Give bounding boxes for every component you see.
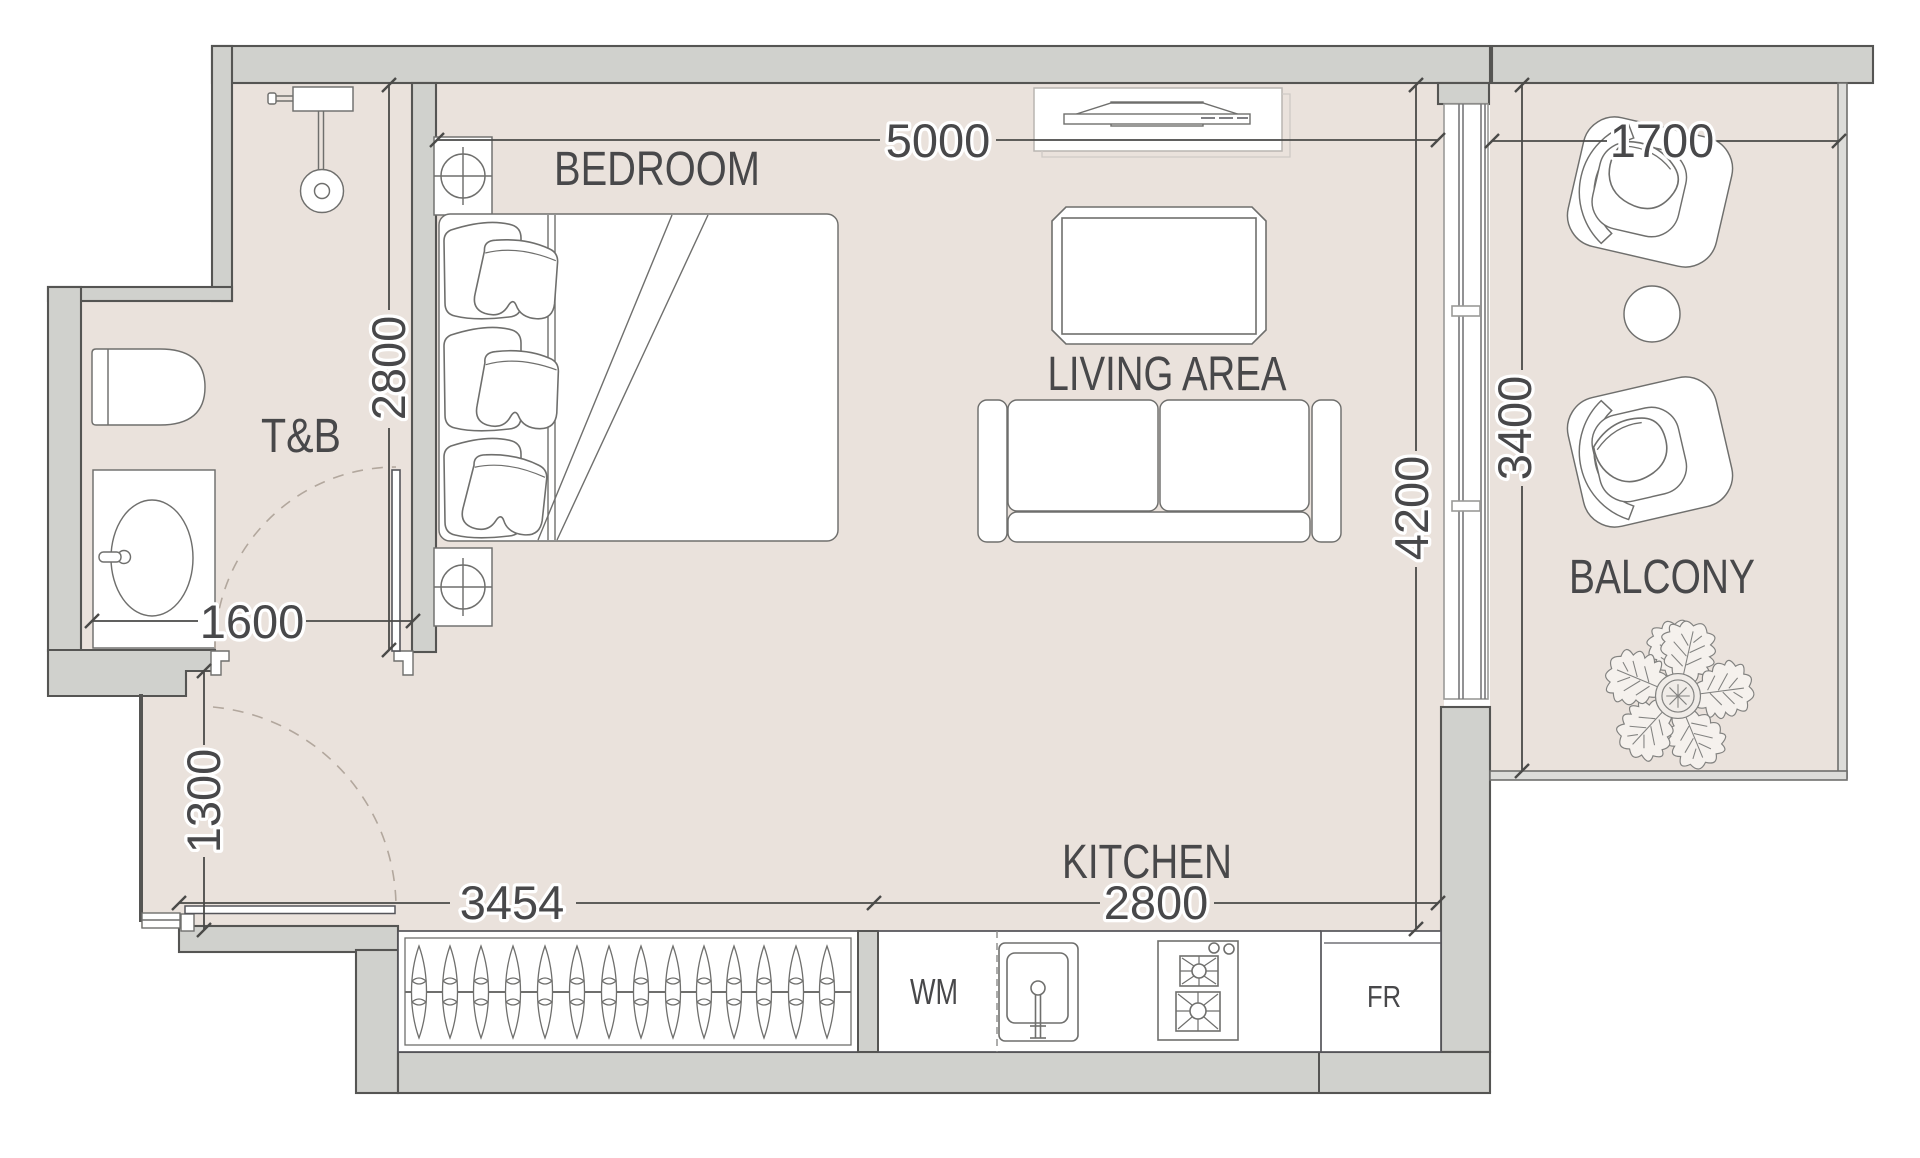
svg-text:BALCONY: BALCONY <box>1569 551 1755 604</box>
svg-text:4200: 4200 <box>1385 456 1438 561</box>
svg-text:2800: 2800 <box>362 316 415 421</box>
svg-text:3400: 3400 <box>1488 376 1541 481</box>
svg-text:T&B: T&B <box>261 410 341 463</box>
svg-text:1300: 1300 <box>177 749 230 854</box>
svg-text:FR: FR <box>1367 979 1401 1014</box>
svg-text:1700: 1700 <box>1610 114 1715 167</box>
svg-text:3454: 3454 <box>460 876 565 929</box>
svg-text:5000: 5000 <box>886 114 991 167</box>
svg-text:WM: WM <box>910 971 958 1012</box>
svg-text:LIVING AREA: LIVING AREA <box>1048 348 1287 401</box>
svg-text:1600: 1600 <box>200 595 305 648</box>
svg-text:KITCHEN: KITCHEN <box>1062 836 1232 889</box>
svg-text:BEDROOM: BEDROOM <box>554 143 760 196</box>
